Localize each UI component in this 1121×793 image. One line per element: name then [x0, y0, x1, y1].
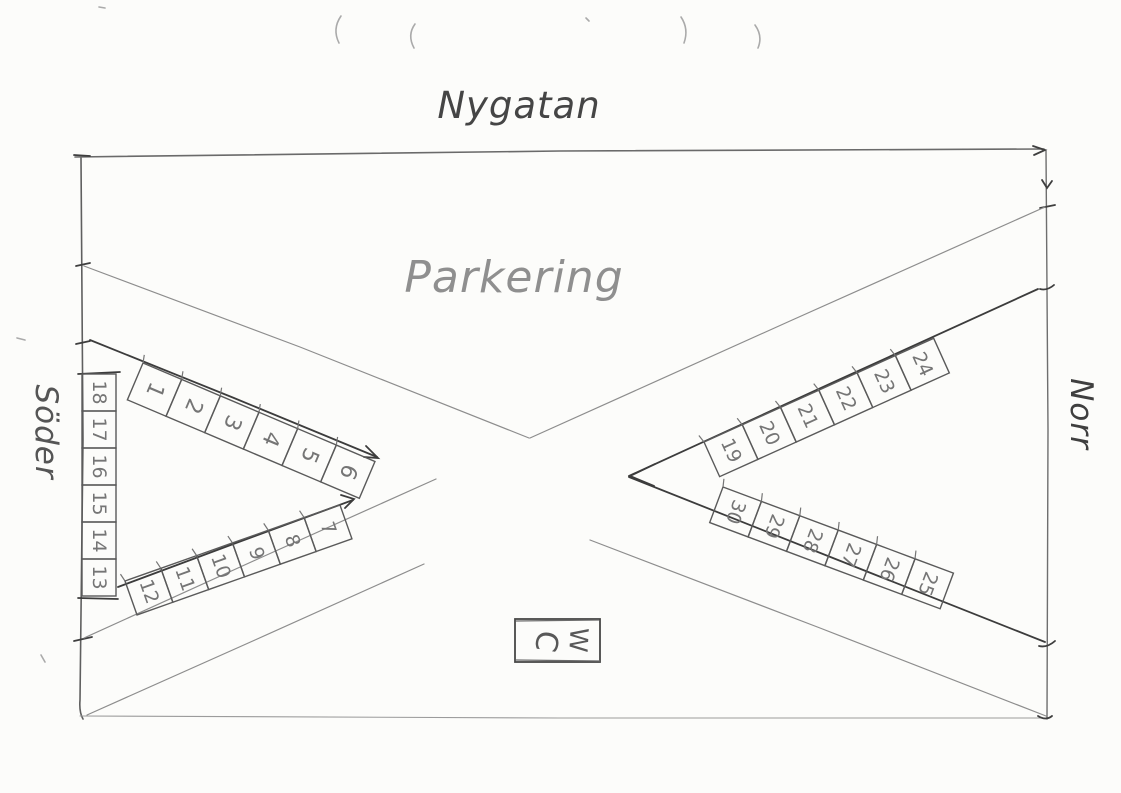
area-label-parkering: Parkering [404, 252, 623, 303]
divider-tick [875, 536, 880, 544]
divider-tick [721, 479, 726, 487]
paper-artifacts [17, 7, 760, 662]
tick-corner-bottom-right [1038, 716, 1052, 719]
parking-spot-number: 1 [140, 378, 168, 401]
guide-row-19-24 [629, 289, 1038, 476]
parking-spot-number: 19 [716, 435, 746, 466]
parking-spot-number: 11 [170, 564, 199, 594]
stray-mark [17, 338, 25, 340]
parking-spot-number: 4 [256, 428, 284, 451]
divider-tick [228, 535, 233, 543]
tick-left-638 [74, 637, 92, 641]
divider-tick [156, 561, 161, 569]
parking-spot-number: 5 [295, 444, 323, 467]
side-label-norr: Norr [1063, 378, 1099, 451]
arrow-top-right [1033, 146, 1045, 155]
divider-tick [699, 435, 704, 443]
street-label-top: Nygatan [437, 84, 600, 127]
parking-spot-number: 3 [218, 411, 246, 434]
punch-mark [681, 17, 686, 43]
parking-spot-number: 27 [836, 540, 865, 570]
road-se-lower-edge [590, 540, 1046, 716]
parking-spot-number: 24 [907, 349, 937, 380]
parking-spot-number: 15 [88, 491, 110, 515]
stray-mark [99, 7, 105, 8]
wc-letter-w: W [563, 627, 593, 653]
parking-spot-number: 12 [135, 577, 164, 607]
row-guide-lines [90, 289, 1045, 642]
parking-spot-number: 8 [280, 532, 305, 551]
divider-tick [300, 510, 305, 518]
parking-sketch: Nygatan Parkering Söder Norr [0, 0, 1121, 793]
sketch-page: Nygatan Parkering Söder Norr [0, 0, 1121, 793]
divider-tick [192, 548, 197, 556]
parking-spot-number: 18 [88, 380, 110, 404]
stray-mark [41, 655, 45, 662]
parking-spot-number: 25 [913, 569, 942, 599]
parking-spot-number: 7 [316, 519, 341, 538]
parking-spot-number: 17 [88, 417, 110, 441]
divider-tick [798, 508, 803, 516]
stray-mark [586, 18, 589, 21]
tick-column-bottom [78, 598, 118, 599]
tick-left-157 [74, 155, 90, 156]
border-top [75, 149, 1044, 157]
side-label-soder: Söder [28, 384, 64, 480]
divider-tick [913, 551, 918, 559]
punch-mark [411, 24, 415, 48]
parking-spot-number: 6 [334, 460, 362, 483]
divider-tick [120, 573, 125, 581]
divider-tick [836, 522, 841, 530]
spot-row-row-19-24: 192021222324 [699, 331, 949, 477]
border-right [1046, 151, 1048, 719]
parking-spot-number: 26 [875, 554, 904, 584]
parking-spot-number: 23 [869, 366, 899, 397]
guide-row-1-6 [90, 340, 377, 457]
tick-right-206 [1040, 205, 1055, 208]
border-bottom [80, 716, 1049, 718]
punch-mark [755, 25, 760, 48]
arrow-right-upper [1042, 180, 1052, 188]
wc-letter-c: C [527, 628, 565, 655]
wc-box: C W [515, 619, 600, 662]
divider-tick [264, 523, 269, 531]
parking-spot-number: 28 [798, 526, 827, 556]
parking-spot-number: 14 [88, 528, 110, 552]
spot-row-column-13-18: 181716151413 [82, 374, 116, 596]
parking-spot-number: 20 [754, 418, 784, 449]
parking-spot-number: 13 [88, 565, 110, 589]
parking-spot-number: 2 [179, 395, 207, 418]
punch-mark [336, 16, 341, 43]
parking-spot-number: 29 [759, 511, 788, 541]
parking-spot-number: 16 [88, 454, 110, 478]
parking-spot-number: 22 [831, 383, 861, 414]
parking-spot-number: 10 [206, 551, 235, 581]
spot-row-row-25-30: 302928272625 [708, 479, 956, 609]
parking-rows: 1234561211109871817161514131920212223243… [82, 331, 956, 616]
spot-row-row-7-12: 121110987 [120, 497, 351, 615]
tick-left-265 [76, 263, 90, 266]
divider-tick [760, 493, 765, 501]
spot-row-row-1-6: 123456 [126, 355, 379, 498]
guide-row-25-30 [629, 477, 1045, 642]
parking-spot-number: 21 [793, 401, 823, 432]
